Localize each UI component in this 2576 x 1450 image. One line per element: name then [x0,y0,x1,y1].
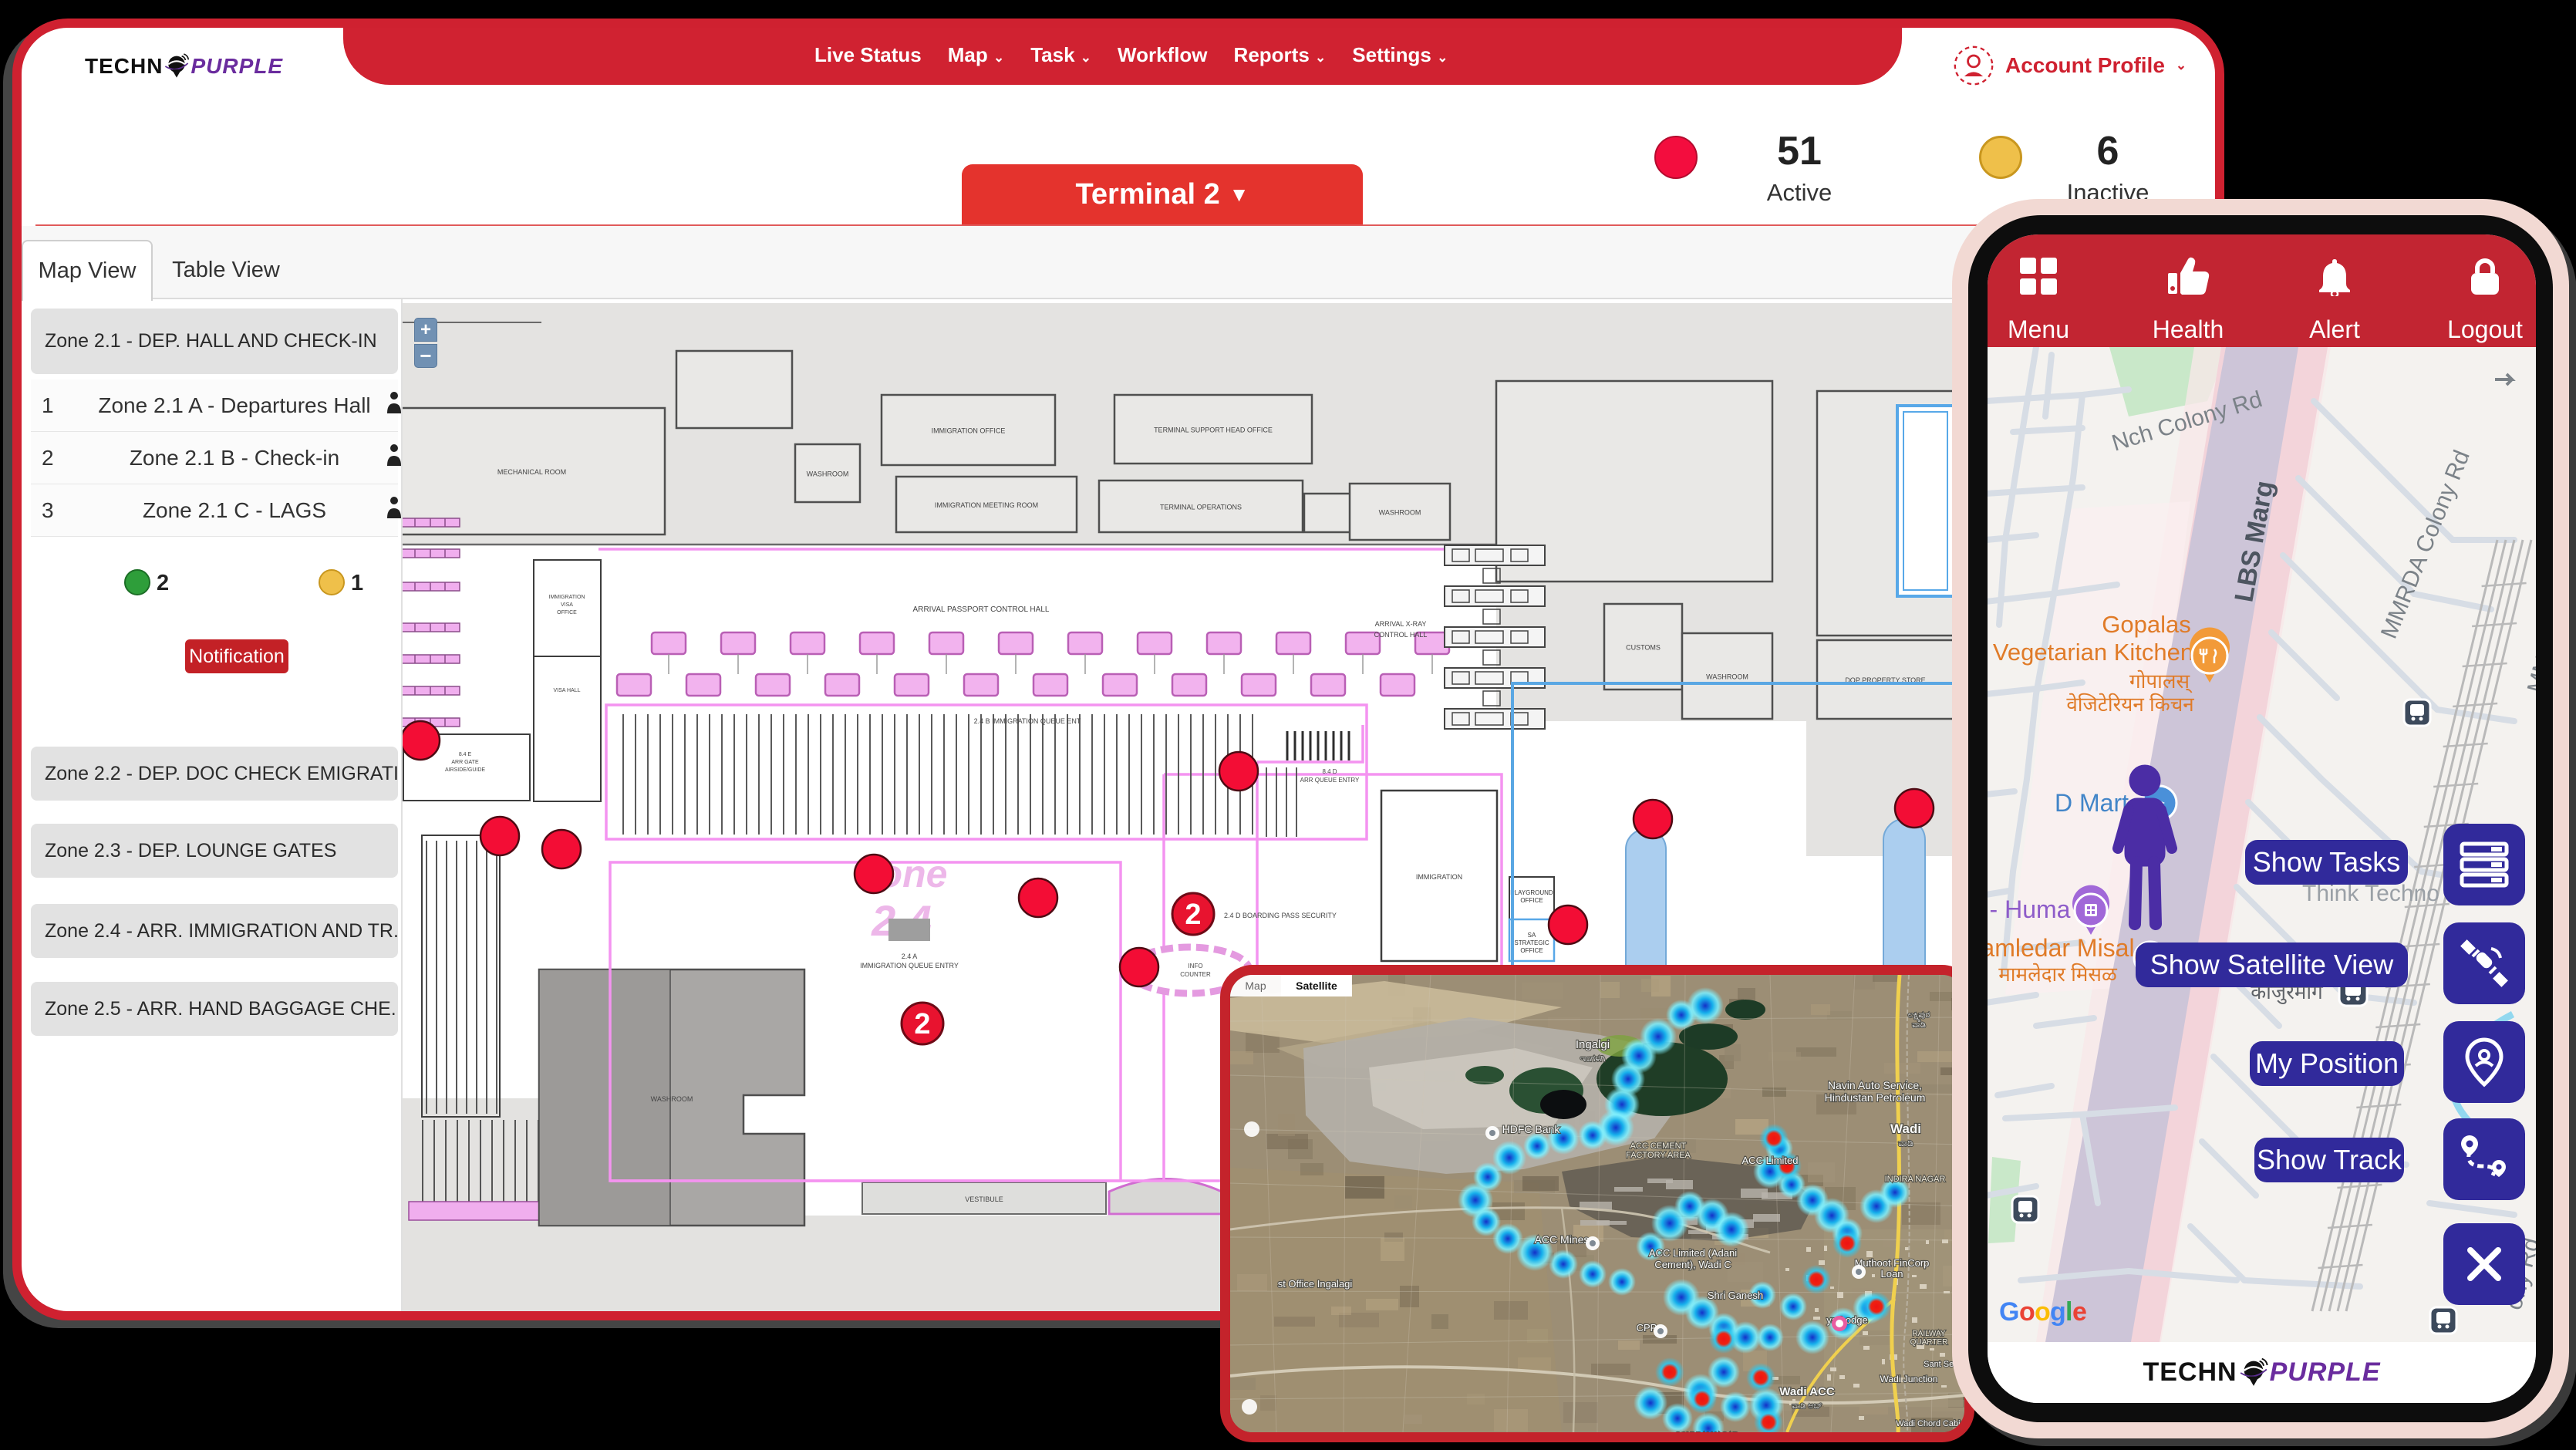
svg-text:SONI BAI NAGAR: SONI BAI NAGAR [1675,1431,1738,1432]
svg-text:G: G [1999,1297,2019,1327]
svg-text:IMMIGRATION OFFICE: IMMIGRATION OFFICE [932,427,1006,435]
svg-text:ARRIVAL X-RAY: ARRIVAL X-RAY [1375,620,1427,628]
svg-text:ACC CEMENT: ACC CEMENT [1630,1141,1687,1151]
svg-text:Wadi ACC: Wadi ACC [1779,1385,1835,1398]
svg-text:2: 2 [1185,899,1201,931]
svg-text:ವಾಡಿ: ವಾಡಿ [1898,1138,1913,1148]
svg-text:amledar Misal: amledar Misal [1988,934,2135,962]
svg-text:8.4 D: 8.4 D [1322,768,1337,775]
svg-text:ವಾಡಿ: ವಾಡಿ [1912,1020,1926,1030]
svg-text:WASHROOM: WASHROOM [1706,673,1748,681]
svg-text:STRATEGIC: STRATEGIC [1514,939,1549,946]
svg-text:Gopalas: Gopalas [2102,611,2190,638]
svg-text:Hindustan Petroleum: Hindustan Petroleum [1825,1091,1926,1104]
svg-text:g: g [2050,1297,2066,1327]
svg-text:VISA HALL: VISA HALL [553,688,580,693]
svg-text:Shri Ganesh: Shri Ganesh [1708,1290,1763,1301]
svg-text:ACC Mines: ACC Mines [1535,1233,1590,1246]
svg-text:OFFICE: OFFICE [1520,897,1543,904]
svg-text:WASHROOM: WASHROOM [1379,509,1421,517]
svg-text:ACC Limited (Adani: ACC Limited (Adani [1649,1247,1737,1259]
svg-text:e: e [2072,1297,2087,1327]
svg-text:AIRSIDE/GUIDE: AIRSIDE/GUIDE [445,767,485,773]
svg-text:VESTIBULE: VESTIBULE [965,1195,1003,1203]
svg-text:st Office Ingalagi: st Office Ingalagi [1278,1278,1353,1290]
svg-text:IMMIGRATION QUEUE ENTRY: IMMIGRATION QUEUE ENTRY [860,962,959,969]
svg-text:INFO: INFO [1188,963,1202,969]
svg-text:Satellite: Satellite [1296,980,1337,992]
svg-text:मामलेदार मिसळ: मामलेदार मिसळ [1998,963,2118,986]
svg-text:TERMINAL OPERATIONS: TERMINAL OPERATIONS [1160,504,1242,511]
svg-text:VISA: VISA [561,602,573,608]
svg-text:WASHROOM: WASHROOM [807,470,849,478]
svg-text:HDFC Bank: HDFC Bank [1502,1123,1561,1135]
svg-text:IMMIGRATION: IMMIGRATION [1416,873,1462,881]
svg-text:PLAYGROUND: PLAYGROUND [1510,889,1553,896]
svg-text:CUSTOMS: CUSTOMS [1626,644,1661,652]
svg-text:COUNTER: COUNTER [1180,971,1211,978]
svg-text:गोपालस्: गोपालस् [2129,669,2193,693]
svg-text:OFFICE: OFFICE [1520,947,1543,954]
svg-text:OFFICE: OFFICE [557,610,577,615]
svg-text:o: o [2019,1297,2035,1327]
svg-text:SA: SA [1528,932,1536,939]
svg-text:ARRIVAL PASSPORT CONTROL HALL: ARRIVAL PASSPORT CONTROL HALL [913,605,1050,614]
svg-text:IMMIGRATION: IMMIGRATION [549,595,585,600]
svg-text:ARR GATE: ARR GATE [451,760,479,765]
svg-text:TERMINAL SUPPORT HEAD OFFICE: TERMINAL SUPPORT HEAD OFFICE [1154,427,1273,434]
svg-text:2.4 D BOARDING PASS SECURITY: 2.4 D BOARDING PASS SECURITY [1224,912,1337,919]
svg-text:IMMIGRATION MEETING ROOM: IMMIGRATION MEETING ROOM [935,501,1038,509]
svg-text:ARR QUEUE ENTRY: ARR QUEUE ENTRY [1300,777,1360,784]
svg-text:वेजिटेरियन किचन: वेजिटेरियन किचन [2066,693,2194,716]
svg-text:ಇಂಗಳಗಿ: ಇಂಗಳಗಿ [1580,1053,1606,1064]
svg-text:INDIRA NAGAR: INDIRA NAGAR [1885,1175,1946,1184]
svg-text:Ingalgi: Ingalgi [1576,1038,1610,1051]
svg-text:8.4 E: 8.4 E [459,752,472,757]
svg-text:ACC Limited: ACC Limited [1742,1155,1799,1166]
svg-text:CONTROL HALL: CONTROL HALL [1374,631,1428,639]
svg-text:2: 2 [914,1008,930,1040]
svg-text:QUARTER: QUARTER [1910,1338,1948,1347]
svg-text:RAILWAY: RAILWAY [1912,1330,1945,1338]
svg-text:o: o [2035,1297,2051,1327]
svg-text:Wadi Chord Cabin: Wadi Chord Cabin [1896,1419,1964,1428]
svg-text:2.4 B IMMIGRATION QUEUE ENT: 2.4 B IMMIGRATION QUEUE ENT [974,717,1081,725]
svg-text:FACTORY AREA: FACTORY AREA [1626,1151,1691,1160]
svg-text:2.4 A: 2.4 A [902,953,918,960]
svg-text:Muthoot FinCorp: Muthoot FinCorp [1855,1257,1930,1269]
svg-text:WASHROOM: WASHROOM [651,1095,693,1103]
svg-text:Wadi Junction: Wadi Junction [1880,1374,1938,1384]
svg-text:Vegetarian Kitchen: Vegetarian Kitchen [1993,639,2193,666]
svg-text:Loan: Loan [1881,1268,1903,1280]
svg-text:MECHANICAL ROOM: MECHANICAL ROOM [497,468,566,476]
svg-text:ವಾಡಿ ಅಬ್: ವಾಡಿ ಅಬ್ [1792,1401,1822,1411]
svg-text:Navin Auto Service,: Navin Auto Service, [1828,1079,1922,1091]
svg-text:Map: Map [1245,980,1266,992]
svg-text:Cement), Wadi C: Cement), Wadi C [1654,1259,1731,1270]
svg-text:- Huma: - Huma [1990,895,2071,923]
svg-text:D Mart: D Mart [2055,789,2129,817]
svg-text:Wadi: Wadi [1890,1121,1921,1136]
